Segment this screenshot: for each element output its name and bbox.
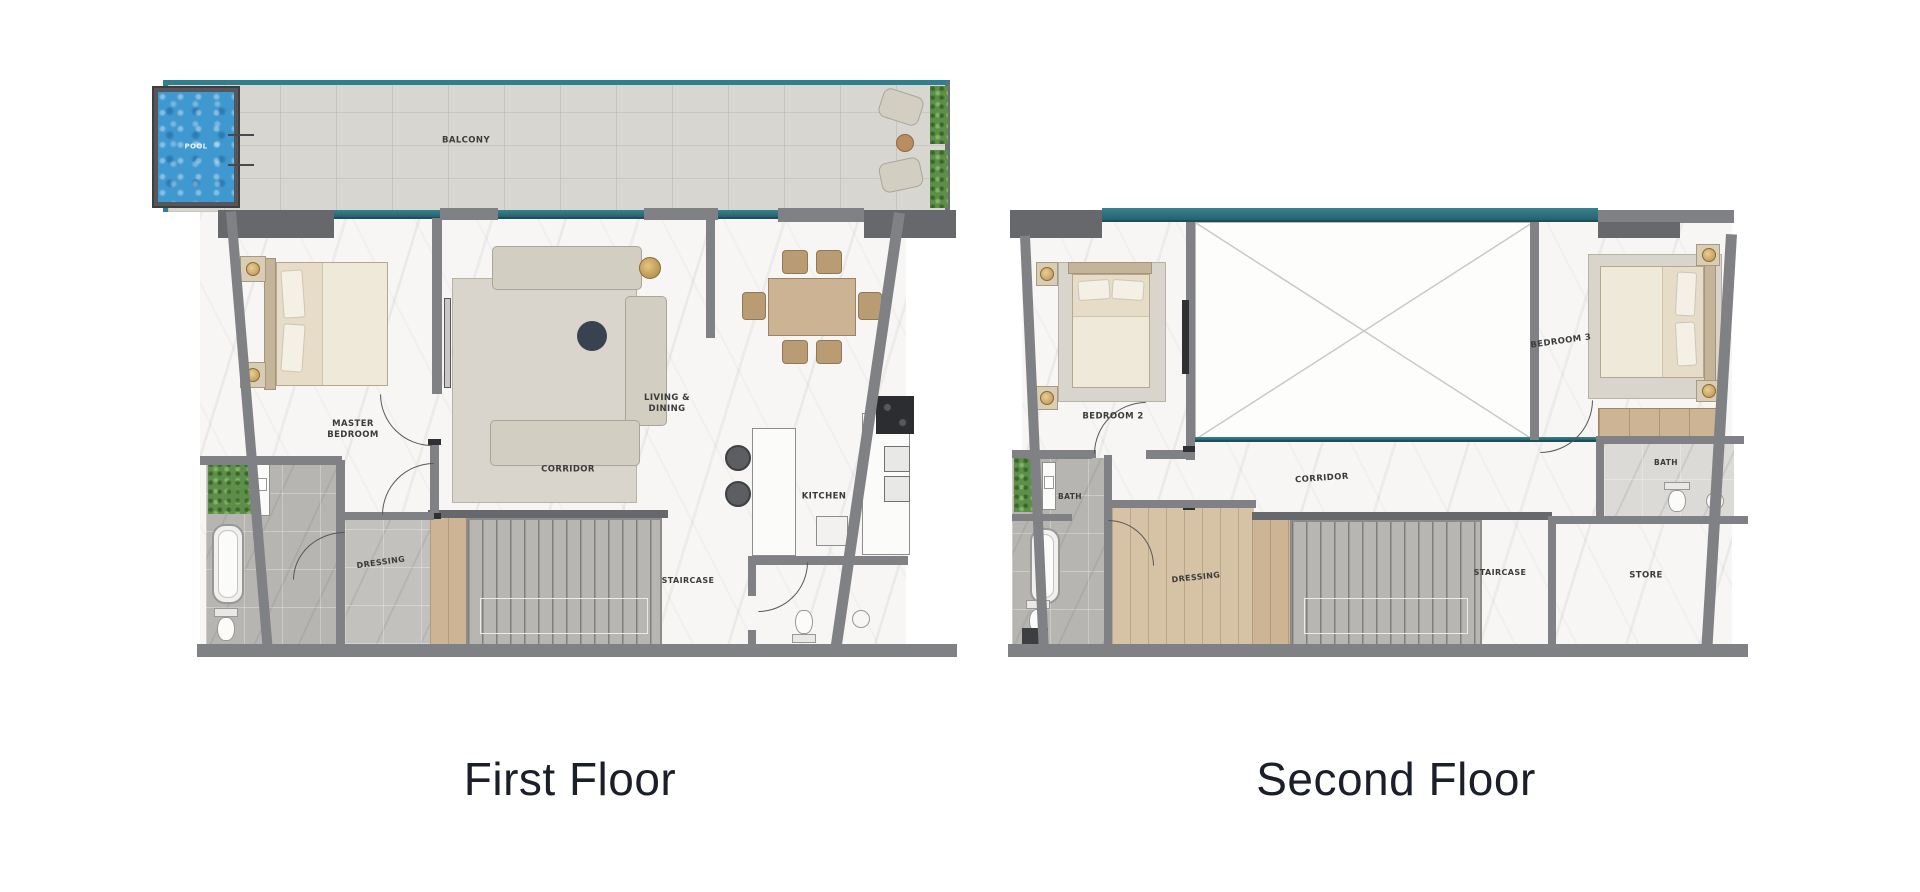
kitchen-appliance [816,516,848,546]
wall-master-living [432,218,442,394]
wall-bath-left-top [1012,450,1096,458]
washbasin [1044,476,1054,489]
window-glass [718,210,778,219]
sliding-door [444,298,451,388]
wall-dressing-top [1108,500,1256,508]
wall [440,208,498,220]
lamp-icon [1040,391,1054,405]
gold-side-table [639,257,661,279]
bath-plant [208,462,252,514]
balcony-deck [163,80,950,212]
kitchen-sink [884,476,910,502]
balcony-planter [930,86,948,144]
pool-step [228,164,254,166]
wall [1010,210,1102,238]
stair-rail [1304,598,1468,634]
balcony-planter [930,150,948,208]
master-bedroom-label: MASTER BEDROOM [321,419,385,441]
wall-wc-left [748,630,756,646]
window-glass [334,210,440,219]
bath-right-label: BATH [1654,458,1678,468]
toilet [217,617,235,641]
kitchen-sink [884,446,910,472]
dining-chair [782,250,808,274]
bed-headboard [1704,262,1716,382]
wall-master-bath [200,456,342,465]
pillow [1675,322,1697,367]
dining-table [768,278,856,336]
staircase [1290,520,1482,646]
coffee-table [577,321,607,351]
bathtub [212,524,244,604]
window-glass [498,210,644,219]
stair-rail [480,598,648,634]
stair-landing-wood [430,518,466,646]
bathtub-inner [218,530,238,598]
pillow [280,323,305,372]
wall [864,210,956,238]
stair-wall [428,510,668,518]
cooktop [876,396,914,434]
bed-blanket [1601,267,1663,377]
living-dining-label: LIVING & DINING [638,393,696,415]
balcony-side-table [896,134,914,152]
pillow [1675,272,1697,317]
outer-wall-bottom [1008,644,1748,657]
lamp-icon [246,262,260,276]
bar-stool [725,445,751,471]
lamp-icon [1702,248,1716,262]
dining-chair [816,250,842,274]
wall-bathright-store [1552,516,1748,524]
store-label: STORE [1629,570,1663,581]
wall [778,208,864,222]
window-glass-band [1102,208,1598,222]
bath-left-label: BATH [1058,492,1082,502]
lamp-icon [1702,384,1716,398]
first-floor-title: First Floor [360,752,780,806]
second-floor-title: Second Floor [1186,752,1606,806]
wall-wc-left [748,556,756,596]
dressing-floor [345,520,431,644]
bedroom2-label: BEDROOM 2 [1082,411,1143,422]
staircase [466,518,662,646]
floor-plan-canvas: POOL BALCONY MASTER BEDROOM LIVING & DIN… [0,0,1920,892]
dining-chair [816,340,842,364]
washbasin [852,610,870,628]
wall [1598,222,1680,238]
wall-bathright-left [1596,440,1604,524]
toilet [795,610,813,634]
wall-living-dining [706,218,715,338]
pillow [1111,279,1144,301]
kitchen-label: KITCHEN [802,491,847,502]
wall-bathright-top [1596,436,1744,444]
outer-wall-bottom [197,644,957,657]
staircase-label: STAIRCASE [1474,568,1527,578]
bar-stool [725,481,751,507]
sofa [490,420,640,466]
lamp-icon [1040,267,1054,281]
corridor-label: CORRIDOR [541,464,595,475]
pillow [280,269,305,318]
pool-step [228,134,254,136]
door-stub [1183,446,1195,452]
balcony-label: BALCONY [442,135,490,146]
void-x-icon [1196,223,1532,439]
pool-label: POOL [184,142,207,151]
sofa [492,246,642,290]
dining-chair [782,340,808,364]
toilet [1664,482,1690,490]
toilet [1668,490,1686,512]
staircase-label: STAIRCASE [662,576,715,586]
toilet [792,634,816,643]
wall-void-right [1530,222,1539,440]
pillow [1077,279,1110,301]
toilet [214,608,238,617]
wall-store-stair [1548,516,1556,648]
kitchen-island [752,428,796,556]
sliding-door [1182,300,1189,374]
master-bed-blanket [322,263,387,385]
stair-landing-wood [1252,520,1290,646]
void-open-to-below [1195,222,1533,440]
stair-wall [1252,512,1552,520]
dining-chair [742,292,766,320]
bed-blanket [1073,316,1149,387]
bed-headboard [1068,262,1152,274]
